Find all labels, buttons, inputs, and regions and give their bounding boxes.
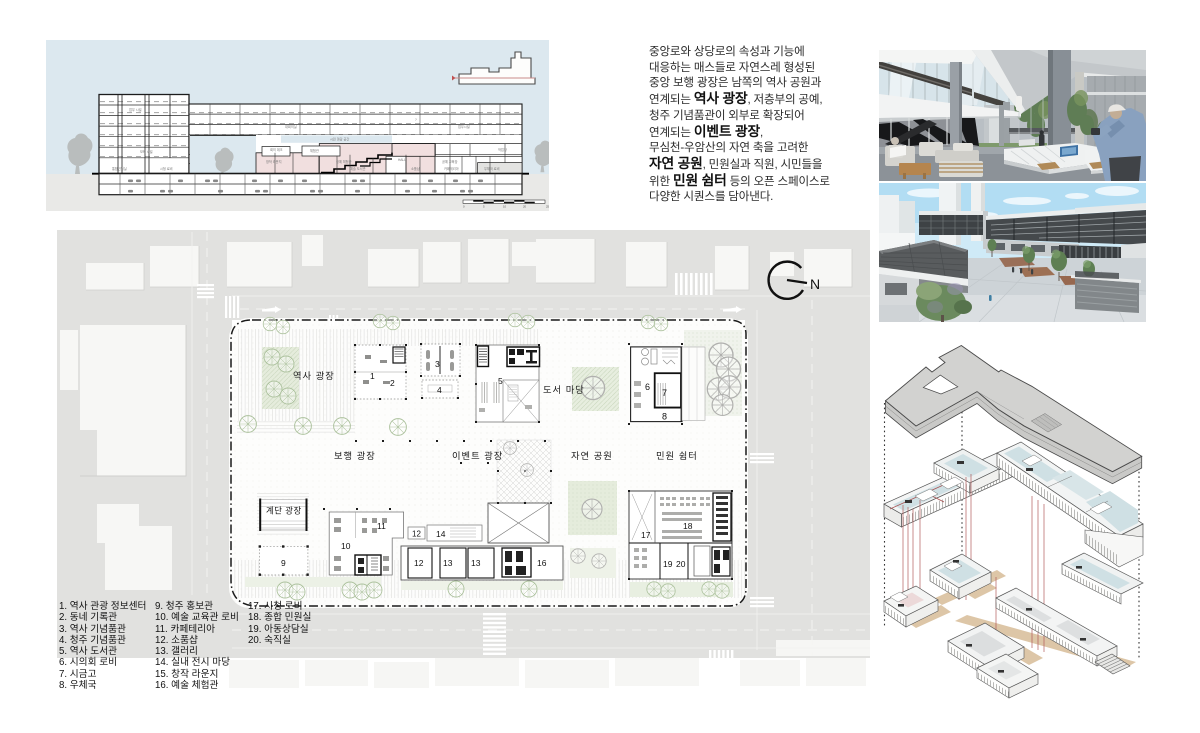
svg-text:보육 시설: 보육 시설 xyxy=(140,149,153,154)
svg-text:20: 20 xyxy=(523,205,527,209)
svg-text:시청 로비: 시청 로비 xyxy=(160,166,173,171)
svg-text:20: 20 xyxy=(676,559,686,569)
svg-text:3: 3 xyxy=(435,359,440,369)
svg-text:10: 10 xyxy=(341,541,351,551)
svg-text:19: 19 xyxy=(663,559,673,569)
svg-text:자연 공원: 자연 공원 xyxy=(571,451,613,461)
svg-text:14: 14 xyxy=(436,529,446,539)
svg-text:4: 4 xyxy=(437,385,442,395)
svg-text:민원 쉼터: 민원 쉼터 xyxy=(656,451,698,461)
svg-text:7: 7 xyxy=(662,388,667,398)
svg-text:이벤트 광장: 이벤트 광장 xyxy=(452,450,503,461)
svg-text:2: 2 xyxy=(390,378,395,388)
svg-text:공예 교육장: 공예 교육장 xyxy=(442,159,458,164)
svg-text:공예 체험관: 공예 체험관 xyxy=(336,159,352,164)
svg-text:소품샵: 소품샵 xyxy=(411,166,420,171)
svg-text:6: 6 xyxy=(645,382,650,392)
svg-text:회의 데크: 회의 데크 xyxy=(270,147,283,152)
svg-text:13: 13 xyxy=(471,558,481,568)
svg-text:업무 시설: 업무 시설 xyxy=(129,107,142,112)
svg-text:보행 광장: 보행 광장 xyxy=(334,450,376,461)
svg-text:16: 16 xyxy=(537,558,547,568)
svg-text:13: 13 xyxy=(443,558,453,568)
svg-text:대회의실: 대회의실 xyxy=(285,124,297,129)
svg-text:9: 9 xyxy=(281,558,286,568)
svg-text:역사 광장: 역사 광장 xyxy=(293,370,335,381)
svg-text:1: 1 xyxy=(370,371,375,381)
svg-text:시민 마당 공간: 시민 마당 공간 xyxy=(330,137,349,142)
svg-text:8: 8 xyxy=(662,412,667,422)
svg-text:작업장: 작업장 xyxy=(498,147,507,152)
svg-text:12: 12 xyxy=(414,558,424,568)
svg-text:예술 도서관: 예술 도서관 xyxy=(350,166,366,171)
svg-text:25(M): 25(M) xyxy=(546,205,549,209)
svg-text:HALL: HALL xyxy=(398,158,406,162)
svg-text:17: 17 xyxy=(641,530,651,540)
svg-text:창작 라운지: 창작 라운지 xyxy=(266,159,282,164)
svg-text:N: N xyxy=(810,276,820,292)
svg-text:18: 18 xyxy=(683,521,693,531)
svg-text:카페테리아: 카페테리아 xyxy=(444,166,459,171)
svg-text:통합민원실: 통합민원실 xyxy=(112,166,127,171)
svg-text:10: 10 xyxy=(503,205,507,209)
svg-text:도서 마당: 도서 마당 xyxy=(543,385,585,395)
svg-text:우체국 로비: 우체국 로비 xyxy=(484,166,500,171)
svg-text:12: 12 xyxy=(412,530,421,539)
svg-text:체험관: 체험관 xyxy=(310,148,319,153)
svg-text:?: ? xyxy=(415,118,417,122)
svg-text:계단 광장: 계단 광장 xyxy=(266,506,302,516)
svg-text:업무시설: 업무시설 xyxy=(458,124,470,129)
